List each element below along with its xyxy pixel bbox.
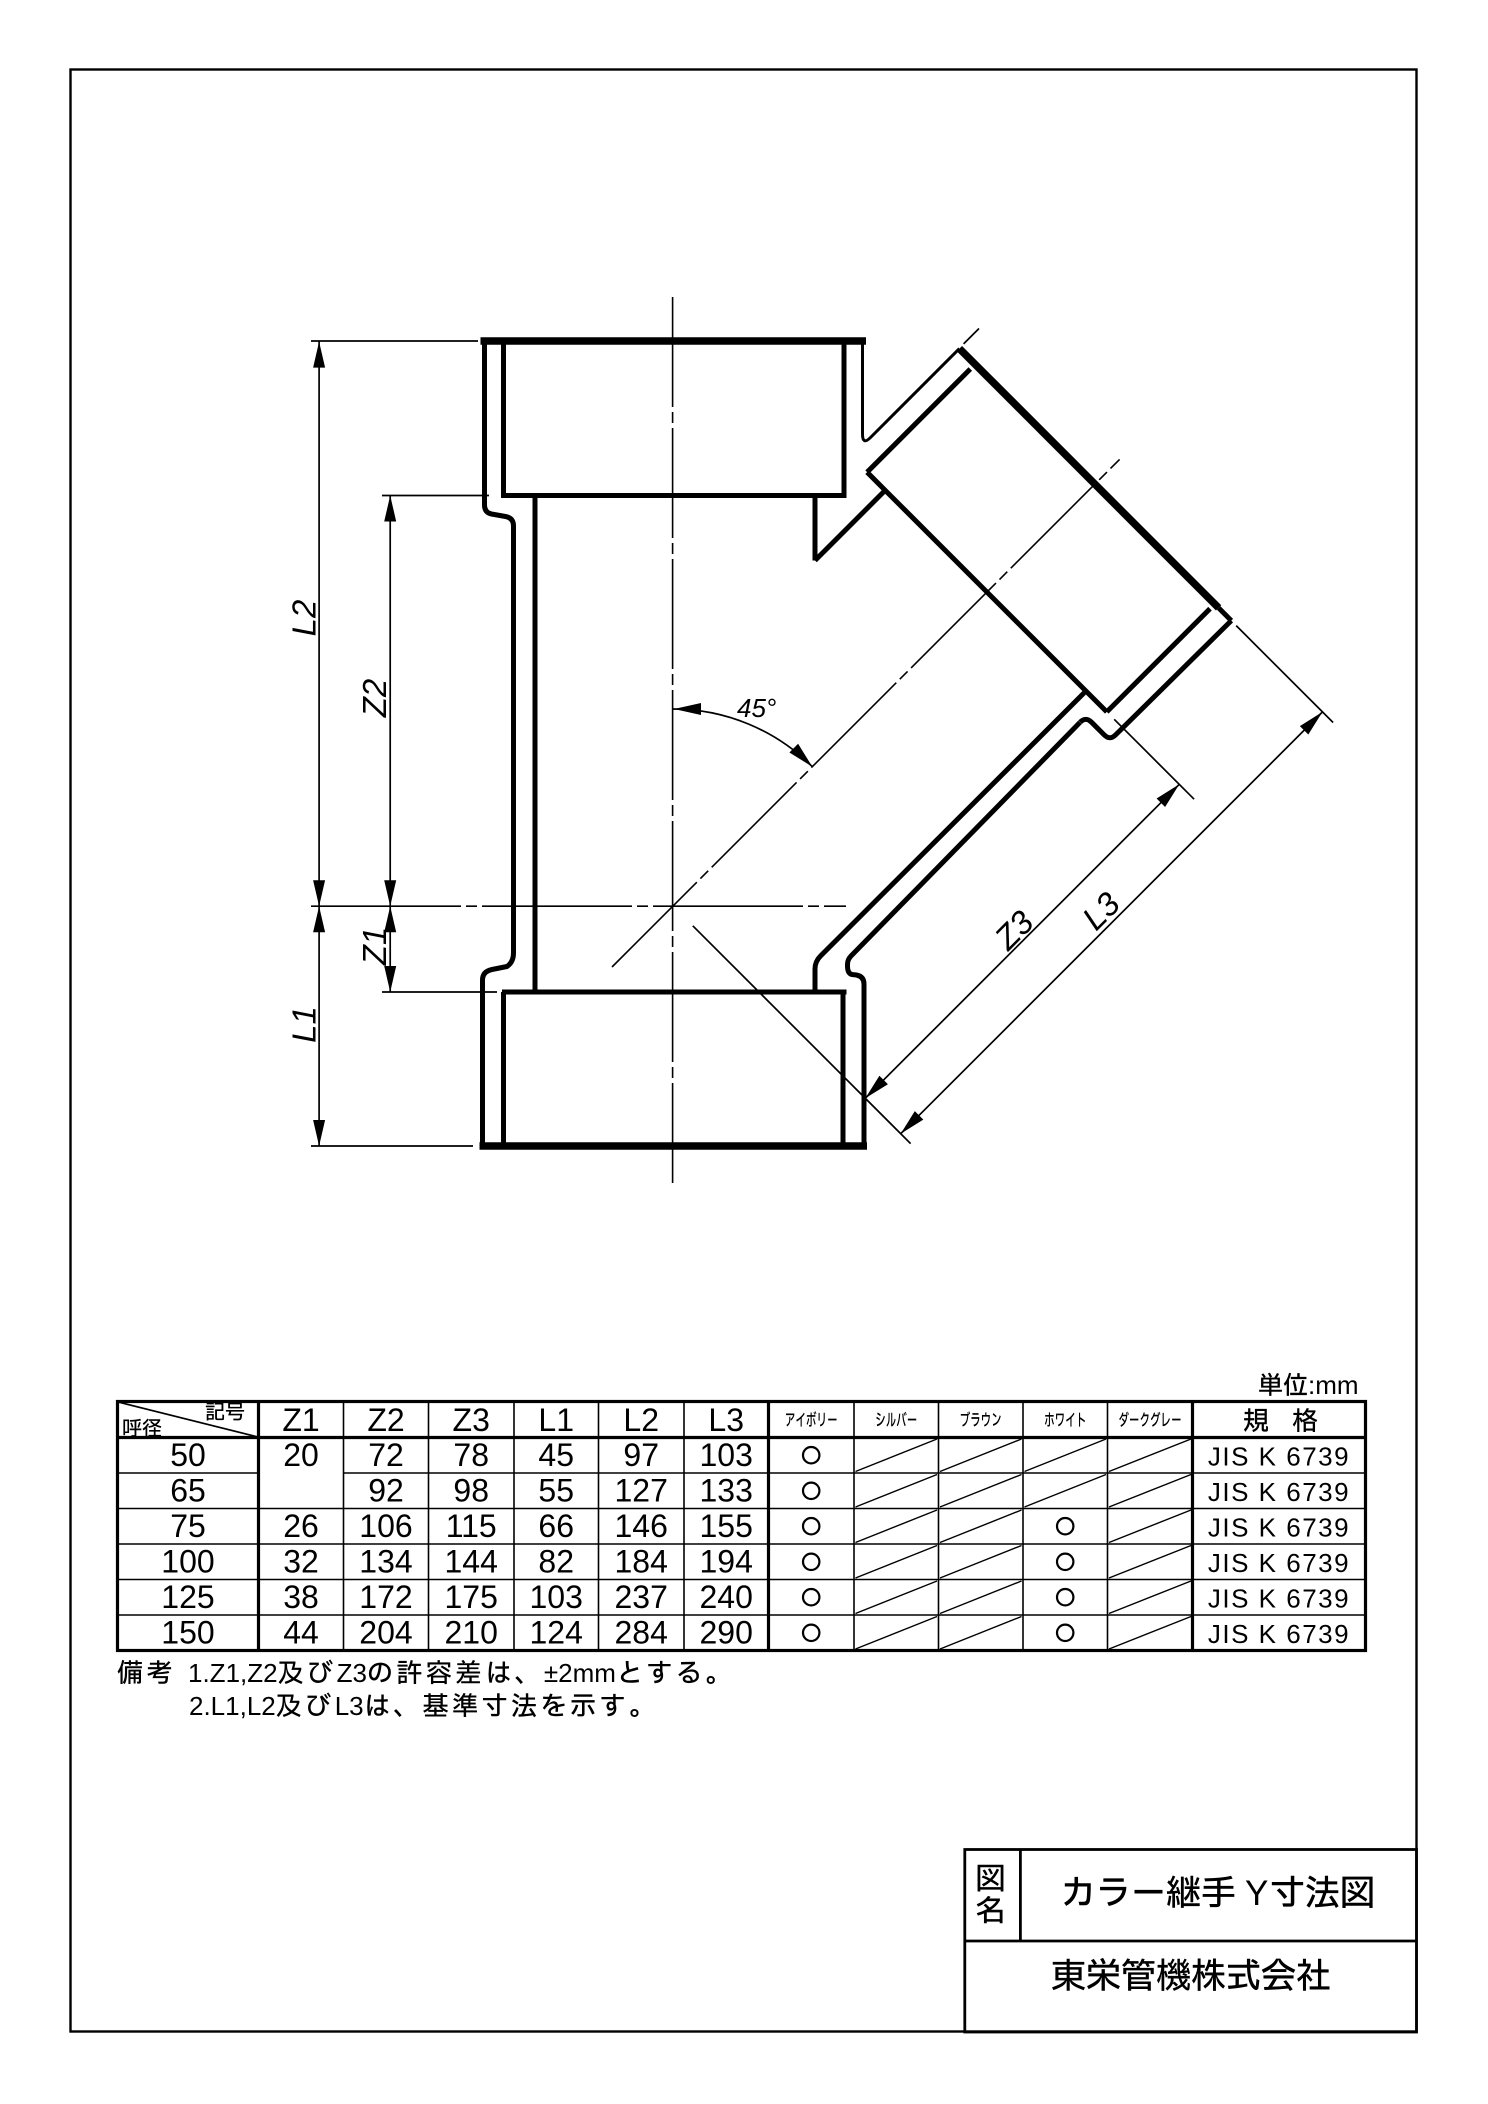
svg-text:L2: L2: [623, 1402, 659, 1438]
svg-text:JIS K 6739: JIS K 6739: [1208, 1442, 1350, 1472]
svg-text:45: 45: [538, 1437, 574, 1473]
svg-text:175: 175: [445, 1579, 498, 1615]
svg-text:L2: L2: [286, 600, 323, 637]
svg-text:JIS K 6739: JIS K 6739: [1208, 1584, 1350, 1614]
svg-text:172: 172: [359, 1579, 412, 1615]
svg-text:±2mm: ±2mm: [544, 1658, 616, 1688]
svg-text:JIS K 6739: JIS K 6739: [1208, 1548, 1350, 1578]
svg-text:106: 106: [359, 1508, 412, 1544]
svg-text:150: 150: [161, 1615, 214, 1651]
svg-text:Z2: Z2: [367, 1402, 404, 1438]
svg-text:97: 97: [623, 1437, 659, 1473]
svg-text:L1: L1: [286, 1006, 323, 1043]
svg-text:155: 155: [700, 1508, 753, 1544]
svg-text:194: 194: [700, 1544, 753, 1580]
svg-text:L3: L3: [708, 1402, 744, 1438]
svg-text:103: 103: [700, 1437, 753, 1473]
svg-text:Z1: Z1: [282, 1402, 319, 1438]
svg-text:92: 92: [368, 1473, 404, 1509]
svg-text:134: 134: [359, 1544, 412, 1580]
svg-text:55: 55: [538, 1473, 574, 1509]
svg-text:82: 82: [538, 1544, 574, 1580]
svg-text:JIS K 6739: JIS K 6739: [1208, 1619, 1350, 1649]
svg-text:2.L1,L2: 2.L1,L2: [189, 1691, 276, 1721]
svg-text:L3: L3: [1075, 884, 1128, 937]
svg-text:184: 184: [615, 1544, 668, 1580]
svg-text:1.Z1,Z2: 1.Z1,Z2: [188, 1658, 278, 1688]
svg-text:L3: L3: [335, 1691, 364, 1721]
svg-text:44: 44: [283, 1615, 319, 1651]
svg-text:290: 290: [700, 1615, 753, 1651]
svg-text:Z3: Z3: [453, 1402, 490, 1438]
svg-text:38: 38: [283, 1579, 319, 1615]
svg-text:124: 124: [530, 1615, 583, 1651]
svg-text:Z3: Z3: [337, 1658, 367, 1688]
svg-text:78: 78: [453, 1437, 489, 1473]
svg-text:133: 133: [700, 1473, 753, 1509]
svg-text:100: 100: [161, 1544, 214, 1580]
svg-text:Z1: Z1: [356, 927, 393, 967]
svg-text:125: 125: [161, 1579, 214, 1615]
svg-text:20: 20: [283, 1437, 319, 1473]
svg-text:210: 210: [445, 1615, 498, 1651]
svg-text:JIS K 6739: JIS K 6739: [1208, 1477, 1350, 1507]
svg-text:204: 204: [359, 1615, 412, 1651]
svg-text:45°: 45°: [737, 693, 776, 723]
svg-text:32: 32: [283, 1544, 319, 1580]
svg-text:240: 240: [700, 1579, 753, 1615]
svg-text::mm: :mm: [1308, 1370, 1359, 1400]
svg-text:72: 72: [368, 1437, 404, 1473]
svg-text:Y: Y: [1245, 1874, 1268, 1913]
svg-text:144: 144: [445, 1544, 498, 1580]
svg-text:146: 146: [615, 1508, 668, 1544]
svg-text:26: 26: [283, 1508, 319, 1544]
svg-text:127: 127: [615, 1473, 668, 1509]
svg-text:115: 115: [446, 1508, 497, 1544]
svg-text:L1: L1: [538, 1402, 574, 1438]
svg-text:Z3: Z3: [986, 903, 1041, 958]
svg-text:JIS K 6739: JIS K 6739: [1208, 1513, 1350, 1543]
svg-text:75: 75: [170, 1508, 206, 1544]
svg-text:65: 65: [170, 1473, 206, 1509]
svg-text:Z2: Z2: [356, 679, 393, 719]
svg-text:103: 103: [530, 1579, 583, 1615]
svg-text:66: 66: [538, 1508, 574, 1544]
svg-text:237: 237: [615, 1579, 668, 1615]
svg-text:50: 50: [170, 1437, 206, 1473]
svg-text:98: 98: [453, 1473, 489, 1509]
svg-text:284: 284: [615, 1615, 668, 1651]
